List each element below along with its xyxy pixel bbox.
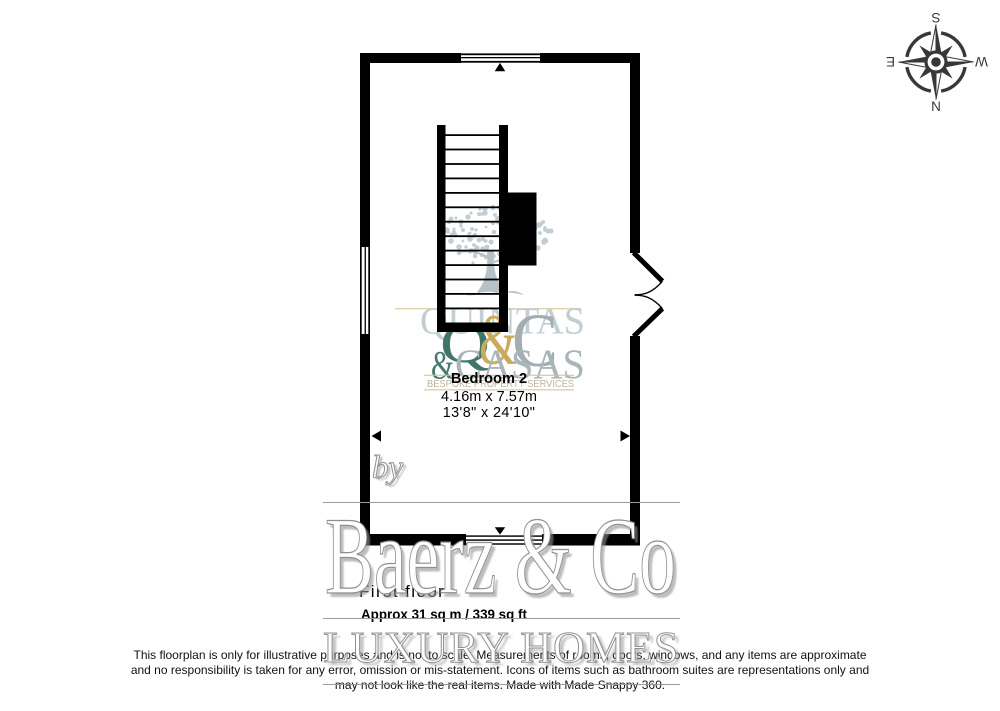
svg-text:W: W xyxy=(975,54,988,69)
svg-text:N: N xyxy=(931,99,941,114)
svg-text:S: S xyxy=(931,10,940,25)
svg-text:E: E xyxy=(886,54,895,69)
